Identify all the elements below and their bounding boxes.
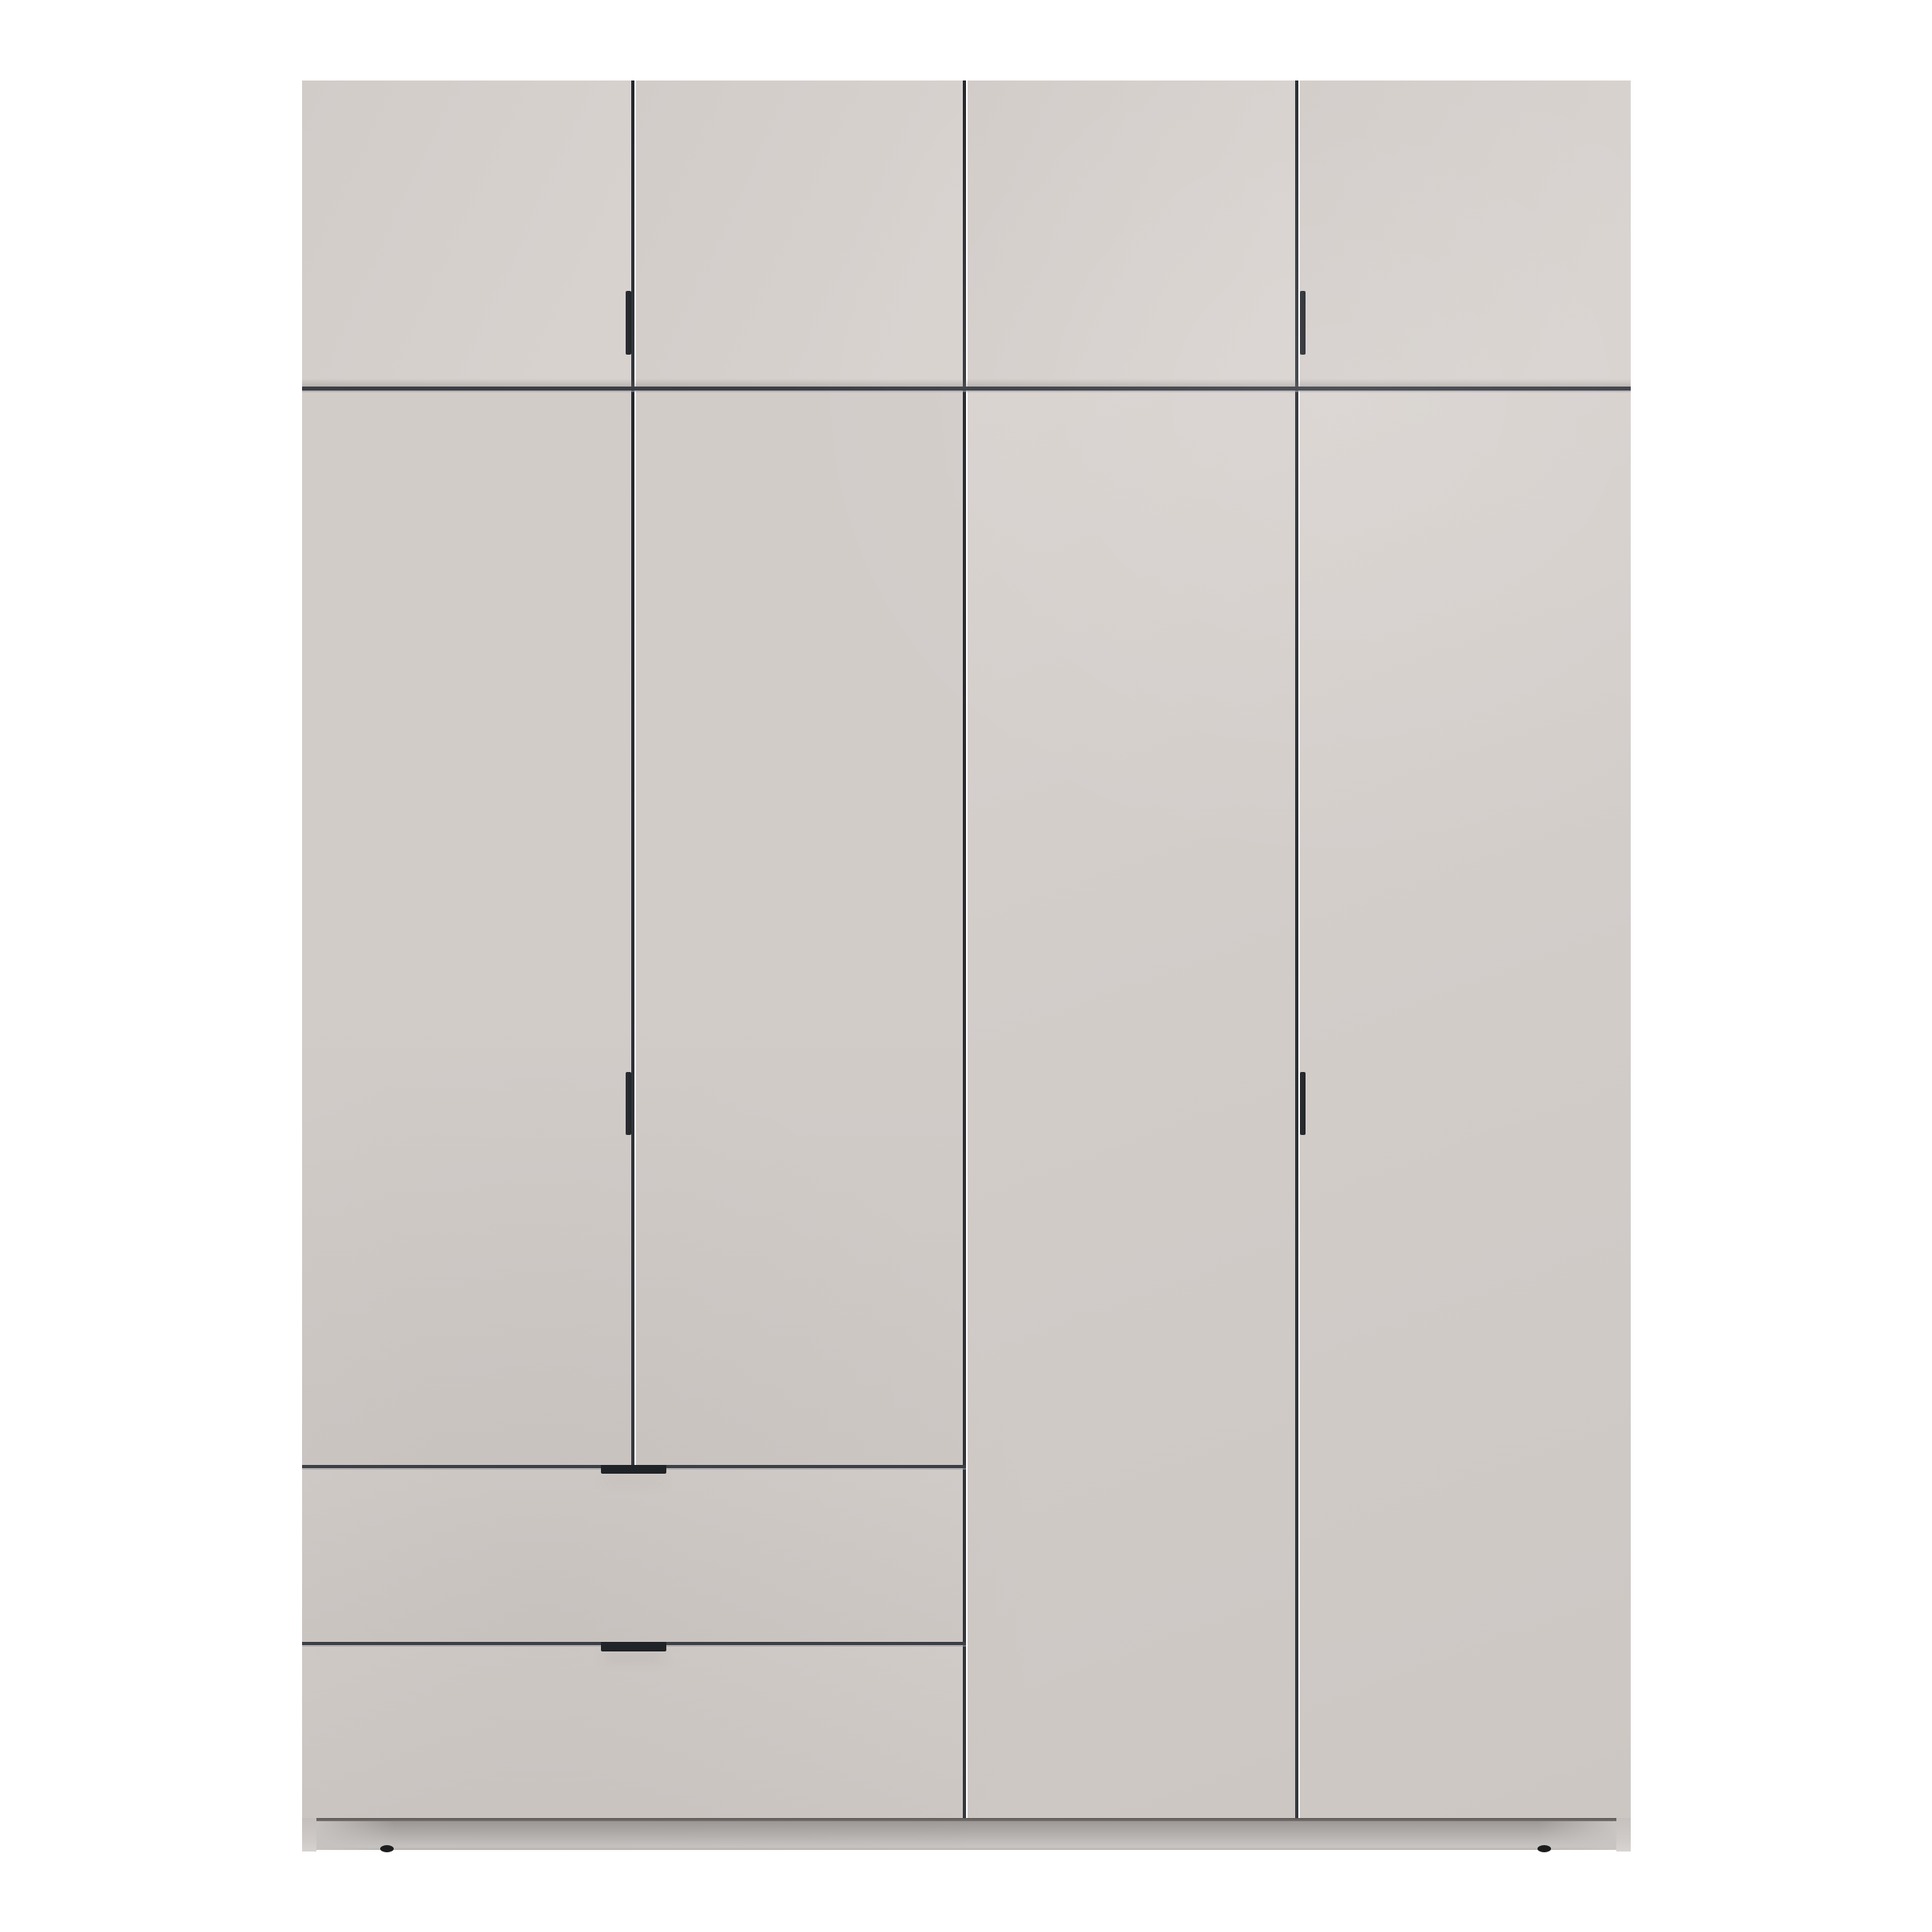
top-cabinet-door-3 — [968, 80, 1297, 387]
drawer-2-handle — [601, 1642, 666, 1651]
main-door-gap-left — [631, 391, 634, 1465]
foot-left — [380, 1845, 394, 1852]
top-right-door-handle — [1300, 291, 1306, 355]
main-door-2 — [636, 391, 964, 1465]
top-left-door-handle — [626, 291, 631, 355]
top-door-gap-1 — [631, 80, 634, 387]
main-door-3 — [968, 391, 1297, 1818]
wardrobe — [302, 80, 1631, 1851]
drawer-1-handle — [601, 1465, 666, 1474]
white-backdrop — [0, 0, 1932, 1932]
drawer-2 — [302, 1645, 966, 1818]
main-door-gap-right — [1295, 391, 1298, 1818]
top-cabinet-door-2 — [636, 80, 964, 387]
top-cabinet-gap-line — [302, 387, 1631, 391]
top-cabinet-door-1 — [302, 80, 633, 387]
left-side-panel-edge — [302, 1818, 316, 1851]
top-door-gap-2 — [963, 80, 966, 387]
foot-right — [1537, 1845, 1551, 1852]
main-door-gap-center — [963, 391, 966, 1818]
top-cabinet-door-4 — [1300, 80, 1631, 387]
drawer-1 — [302, 1468, 966, 1642]
mid-right-door-handle — [1300, 1072, 1306, 1135]
main-door-1 — [302, 391, 633, 1465]
right-side-panel-edge — [1616, 1818, 1631, 1851]
mid-left-door-handle — [626, 1072, 631, 1135]
plinth — [316, 1821, 1616, 1850]
top-door-gap-3 — [1295, 80, 1298, 387]
main-door-4 — [1300, 391, 1631, 1818]
